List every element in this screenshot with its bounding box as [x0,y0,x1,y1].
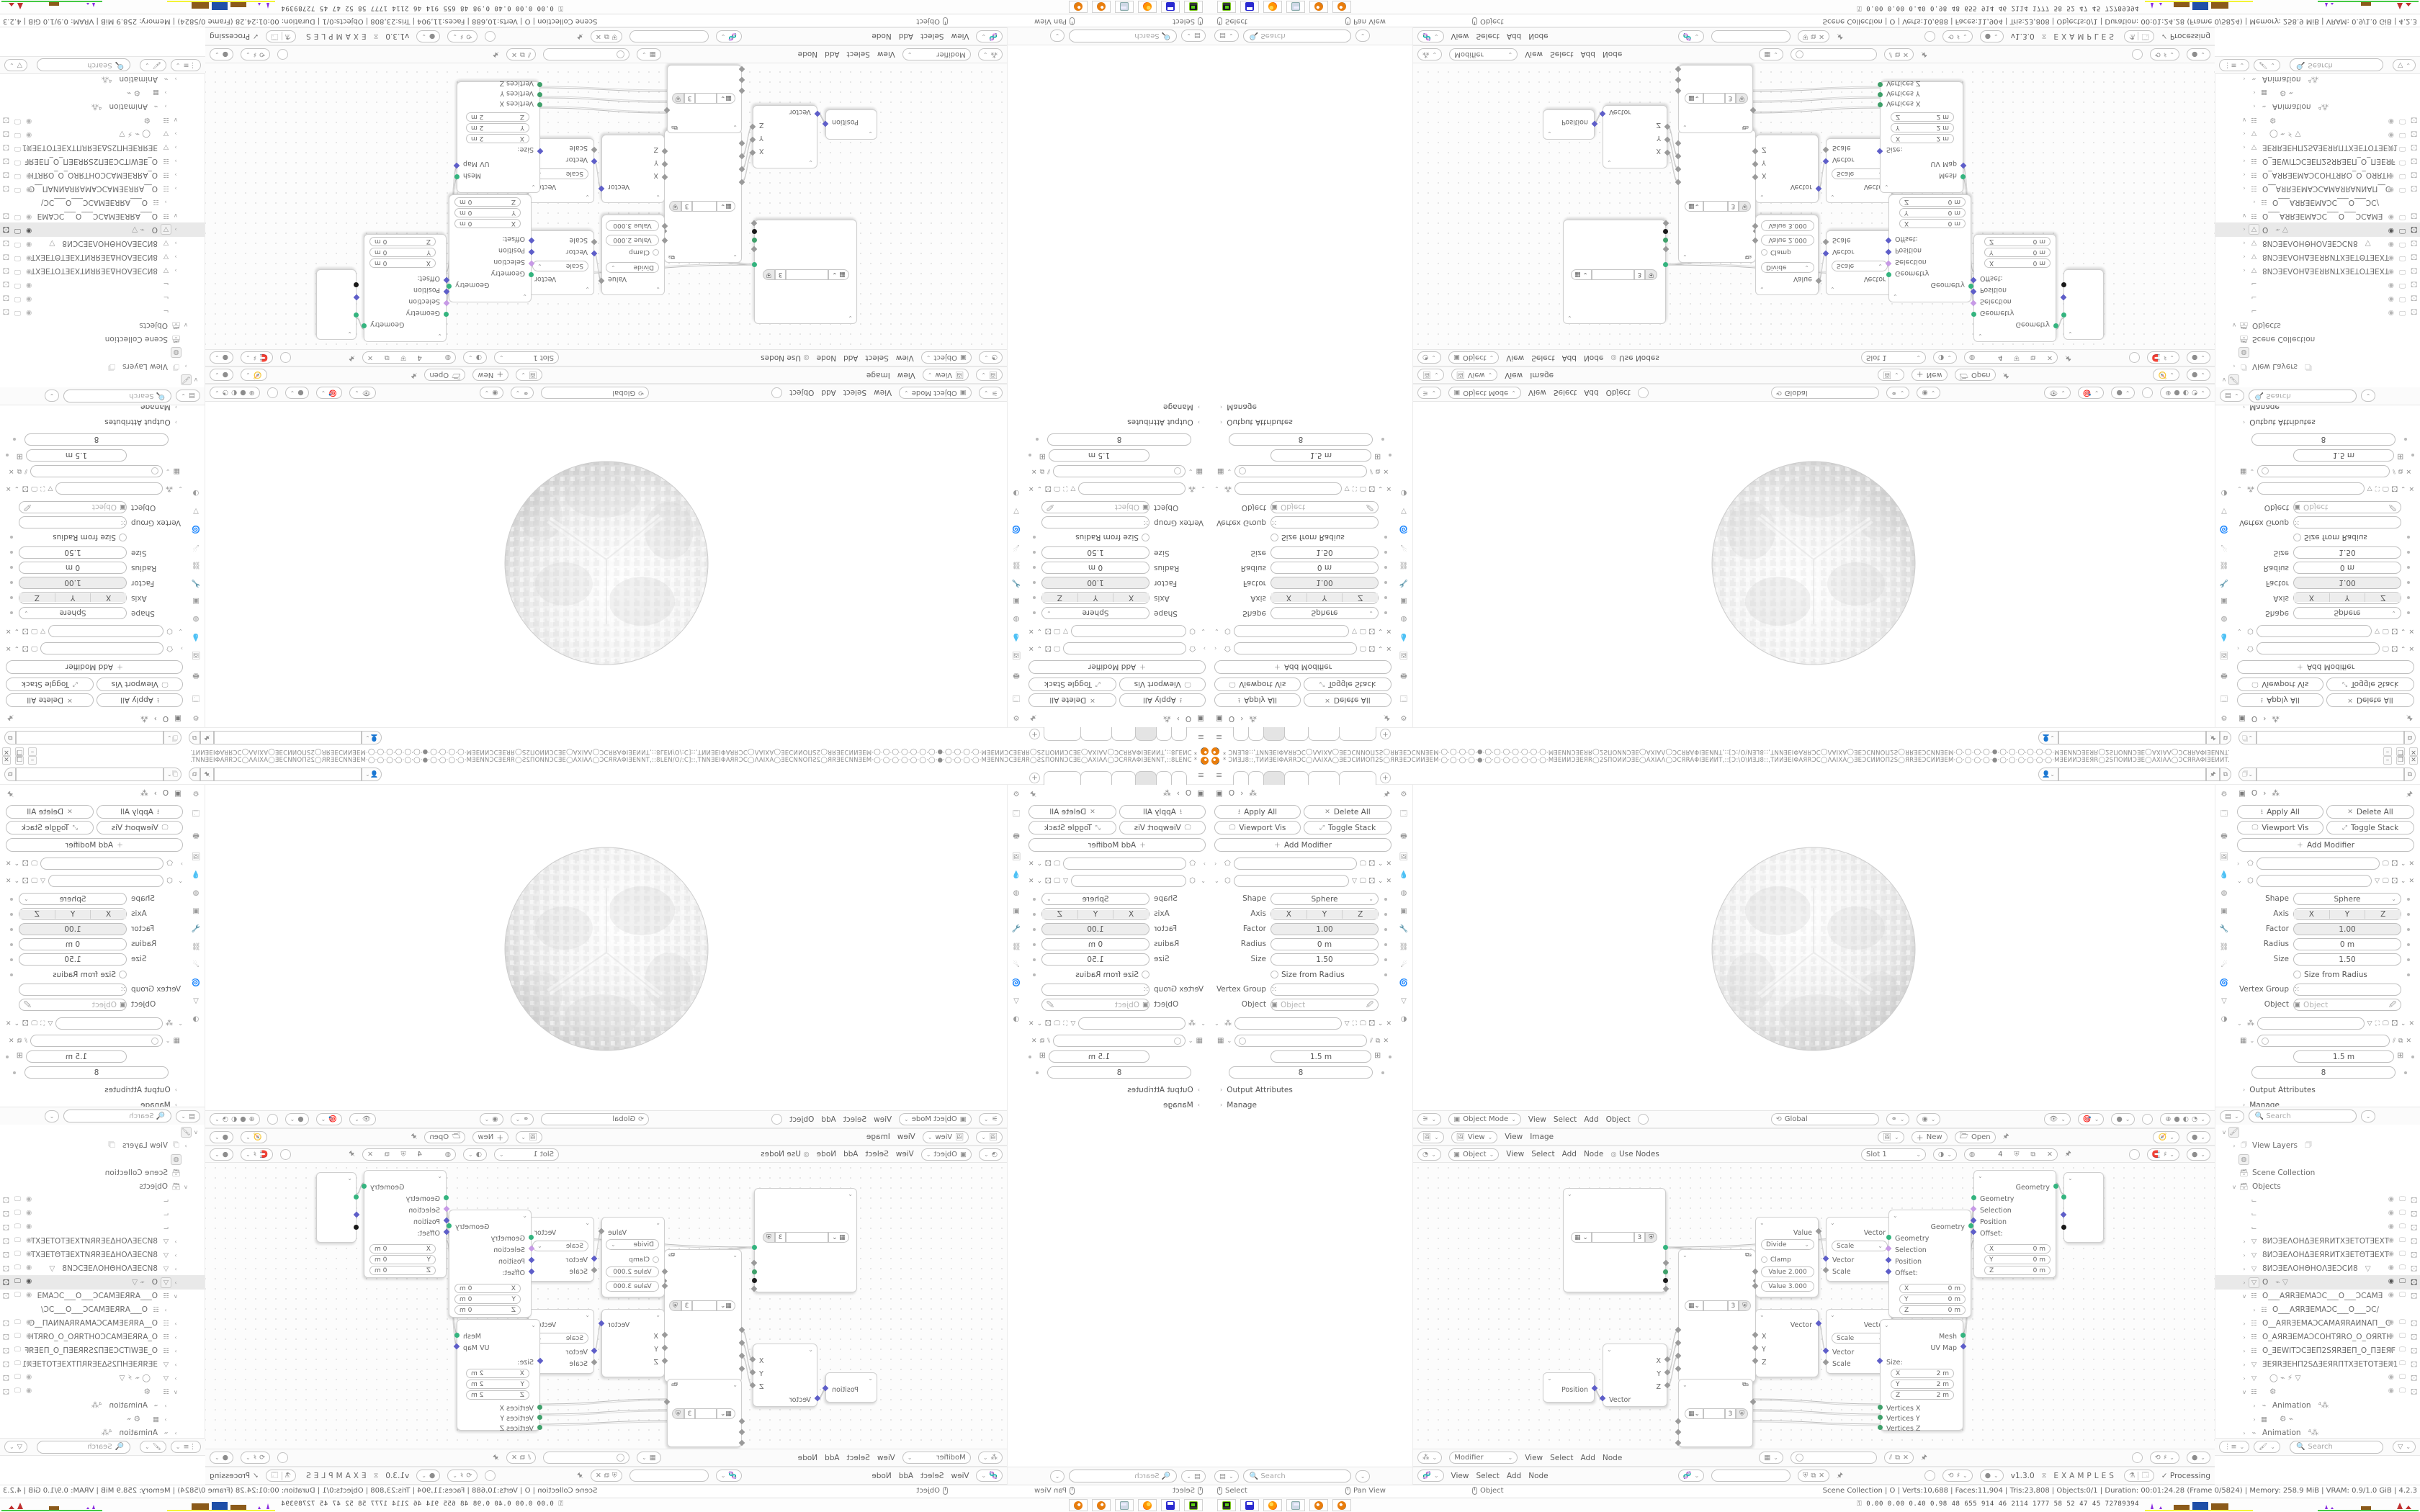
image-view-select[interactable]: 🖼View⌄ [1451,1131,1498,1143]
shading-modes[interactable]: ⊕●◐◔⌄ [2160,1113,2210,1125]
zone-id-icon[interactable]: ▦⌄ [1685,93,1703,104]
factor-field[interactable]: 1.00 [19,577,127,589]
add-workspace-button[interactable]: + [1029,773,1040,783]
toggle-stack-button[interactable]: ⤢Toggle Stack [6,821,94,834]
collapse-chevron-icon[interactable]: ⌄ [437,1173,442,1179]
editor-type-button[interactable]: 🧬⌄ [1417,30,1444,42]
shader-preview-toggle[interactable] [2129,353,2140,364]
properties-options-button[interactable]: ⌄ [1355,1470,1371,1482]
expander-icon[interactable]: › [2250,90,2259,96]
node-socket[interactable] [354,312,359,318]
expander-icon[interactable]: › [171,268,180,274]
outliner-item-label[interactable]: Objects [139,1182,168,1191]
radius-field[interactable]: 0 m [2293,938,2401,950]
node-group-action-icon[interactable]: ⧉ [2398,1038,2403,1045]
properties-tab-icon[interactable]: 💧 [2220,633,2228,641]
zone-count-field[interactable]: 3 [1728,201,1739,212]
node-menu[interactable]: Select [920,1472,944,1480]
node-snap-toggle[interactable]: ⟲♯⌄ [241,48,270,60]
count-field[interactable]: 8 [2251,433,2396,446]
expander-icon[interactable]: v [171,117,180,124]
hide-toggle-icon[interactable]: ◉ [26,168,32,180]
disable-render-icon[interactable]: 🖸 [2411,210,2417,221]
taskbar-app-drive-app[interactable] [1217,1,1236,13]
modifier-header-icon[interactable]: 🖵 [2383,1020,2389,1027]
viewport-menu[interactable]: Object [1606,389,1631,397]
modifier-expanded-row[interactable]: ⌄⬡▽🖵🖸⌄✕ [1028,874,1206,888]
new-image-button[interactable]: ＋ New [472,1131,508,1143]
expander-icon[interactable]: › [171,1279,180,1286]
node-socket[interactable] [1823,158,1829,164]
node-menu[interactable]: View [1525,50,1543,59]
editor-type-button[interactable]: ⚞⌄ [979,387,1003,399]
node-socket[interactable] [354,282,359,287]
disable-viewport-icon[interactable]: 🖵 [14,1346,21,1357]
collapse-chevron-icon[interactable]: ⌄ [868,1375,873,1382]
factor-field[interactable]: 1.00 [1270,577,1379,589]
disable-render-icon[interactable]: 🖸 [2411,1332,2417,1344]
hide-toggle-icon[interactable]: ◉ [26,1209,32,1220]
hide-toggle-icon[interactable]: ◉ [26,114,32,125]
cube-node[interactable]: ⌄MeshUV MapSize:X2 mY2 mZ2 mVertices XVe… [1880,1319,1963,1431]
properties-tab-icon[interactable]: ⚙ [2221,791,2228,798]
animate-dot[interactable] [1036,438,1039,441]
expander-icon[interactable]: v [171,1293,180,1300]
position-node[interactable]: ⌄Position [1543,109,1595,140]
shape-select[interactable]: Sphere⌄ [19,607,127,619]
properties-tab-icon[interactable]: ▽ [193,507,199,515]
properties-search-input[interactable]: 🔍 Search [1243,30,1351,42]
offset-component-field[interactable]: Y0 m [1984,248,2051,257]
restore-button[interactable]: ❐ [15,747,24,756]
outliner-item-label[interactable]: O___AЯRƎEMAƆC___O___ƆCAMƎ [2262,212,2383,220]
taskbar-app-drive-app[interactable] [1217,1499,1236,1511]
node-socket[interactable] [664,107,670,113]
vertex-group-field[interactable]: ⁙ [1270,984,1379,996]
node-socket[interactable] [1663,1260,1669,1266]
snap-toggle[interactable]: ⚭⌄ [511,387,534,399]
modifier-header-icon[interactable]: ▽ [1352,628,1357,635]
zone-field-row[interactable]: ▦⌄3⛨ [1685,1300,1751,1311]
image-id-icon[interactable]: 🖼⌄ [516,1131,542,1143]
active-tool-icon[interactable] [771,387,782,398]
animate-dot[interactable] [1384,973,1387,976]
disable-viewport-icon[interactable]: 🖵 [14,1209,21,1220]
modifier-header-icon[interactable]: ⛶ [1063,485,1067,492]
hide-toggle-icon[interactable]: ◉ [2388,1236,2394,1248]
modifier-header-icon[interactable]: ✕ [6,645,12,652]
animate-dot[interactable] [10,551,13,554]
expander-icon[interactable]: › [2240,76,2249,83]
node-menu[interactable]: Add [825,1454,839,1462]
expander-icon[interactable]: › [171,1362,180,1368]
disable-render-icon[interactable]: 🖸 [3,1277,9,1289]
node-menu[interactable]: Add [1581,1454,1595,1462]
editor-type-button[interactable]: ▤⌄ [1181,30,1206,42]
size-field[interactable]: 1.50 [19,953,127,966]
properties-tab-icon[interactable]: 💧 [2220,871,2228,879]
animate-dot[interactable] [1381,1071,1384,1074]
workspace-tab[interactable] [1156,771,1172,785]
node-socket[interactable] [1823,147,1829,153]
image-menu[interactable]: View [897,371,915,379]
separate-xyz-node[interactable]: ⌄XYZVector [753,105,817,168]
node-tree-type-select[interactable]: Modifier⌄ [1449,1452,1518,1464]
shader-menu[interactable]: View [896,354,914,362]
breadcrumb-item[interactable]: ▣ [174,714,181,723]
outliner-row[interactable]: ›⌁Animation⁴⁂ [0,1398,205,1413]
properties-tab-icon[interactable]: 🗔 [2220,691,2228,703]
hide-toggle-icon[interactable]: ◉ [2388,292,2394,303]
disable-render-icon[interactable]: 🖸 [3,1250,9,1261]
breadcrumb-item[interactable]: ⁂ [1163,714,1171,723]
hide-toggle-icon[interactable]: ◉ [26,1346,32,1357]
properties-tab-icon[interactable]: ▽ [2221,997,2227,1005]
delete-all-button[interactable]: ✕Delete All [1304,805,1391,819]
hide-toggle-icon[interactable]: ◉ [2388,278,2394,289]
outliner-row[interactable]: ›☷O___AЯRƎEMAƆC___O___ƆC∕ [2215,1302,2420,1317]
modifier-header-icon[interactable]: ✕ [2408,860,2414,868]
disable-render-icon[interactable]: 🖸 [2411,1318,2417,1330]
delete-all-button[interactable]: ✕Delete All [6,805,94,819]
viewport-menu[interactable]: View [874,389,892,397]
node-socket[interactable] [752,1245,757,1250]
math-node[interactable]: ⌄ValueDivide⌄ClampValue 2.000Value 3.000 [601,1217,665,1297]
scene-name-field[interactable] [214,768,362,781]
outliner-item-label[interactable]: O_ƎEWITƆCƎEП2SЯRƎEП_O_ПƎEЯF [2262,1346,2396,1355]
properties-tab-icon[interactable]: ⛓ [1399,943,1409,951]
zone-id-icon[interactable]: ▦ ⌄ [828,269,849,280]
node-preview-toggle[interactable] [277,49,288,60]
set-position-node[interactable]: ⌄GeometryGeometrySelectionPositionOffset… [1888,194,1971,302]
shader-preview-toggle[interactable] [280,353,291,364]
animate-dot[interactable] [2407,973,2410,976]
offset-component-field[interactable]: Y0 m [1984,1255,2051,1264]
taskbar-app-calculator[interactable] [1286,1,1305,13]
hide-toggle-icon[interactable]: ◉ [26,210,32,221]
expander-icon[interactable]: v [171,213,180,220]
shader-menu[interactable]: View [896,1150,914,1158]
properties-tab-icon[interactable]: ▣ [1013,907,1019,915]
expander-icon[interactable]: › [2240,227,2249,233]
axis-toggle-option[interactable]: X [1113,594,1149,603]
combine-xyz-node[interactable]: ⌄VectorXYZ [601,1309,665,1377]
zone-shield-icon[interactable]: ⛨ [1736,1408,1748,1419]
nodes-modifier-row[interactable]: ⌄⁂▽⛶🖵🖸⌄✕ [2237,482,2414,495]
outliner-row[interactable]: ›▽O⌁ ▽◉🖵🖸 [2215,1275,2420,1290]
scene-icon[interactable]: 👤⌄ [2038,768,2058,781]
outliner-item-label[interactable]: Scene Collection [105,335,168,343]
animate-dot[interactable] [2404,1071,2407,1074]
collapse-chevron-icon[interactable]: ⌄ [1830,1312,1835,1318]
node-group-action-icon[interactable]: ✕ [9,468,14,475]
pin-icon[interactable]: 🖈 [2406,789,2413,801]
modifier-header-icon[interactable]: ✕ [2408,645,2414,652]
disable-viewport-icon[interactable]: 🖵 [14,1277,21,1289]
node-group-name-field[interactable] [30,465,163,477]
shader-menu[interactable]: View [1506,354,1524,362]
vertex-group-field[interactable]: ⁙ [2293,984,2401,996]
outliner-search-input[interactable]: 🔍 Search [37,59,130,72]
properties-tab-icon[interactable]: 🔧 [2220,925,2228,933]
properties-tab-icon[interactable]: ◍ [2221,889,2228,897]
disable-viewport-icon[interactable]: 🖵 [2399,292,2406,303]
node-socket[interactable] [739,66,745,72]
expander-icon[interactable]: › [2240,1362,2249,1368]
expand-icon[interactable]: › [1198,645,1206,652]
node-socket[interactable] [1675,166,1681,172]
properties-tab-icon[interactable]: ▣ [2220,597,2227,605]
collapse-chevron-icon[interactable]: ⌄ [1567,315,1572,321]
image-gizmos-toggle[interactable]: 🧭⌄ [2153,1131,2179,1143]
proportional-edit-toggle[interactable]: ◉⌄ [480,1113,503,1125]
properties-search-input[interactable]: 🔍 Search [2249,1110,2357,1122]
properties-options-button[interactable]: ⌄ [2361,1110,2376,1122]
toggle-stack-button[interactable]: ⤢Toggle Stack [2326,821,2414,834]
node-group-action-icon[interactable]: ⧉ [17,468,22,475]
animate-dot[interactable] [10,566,13,569]
node-socket[interactable] [1971,312,1976,317]
zone-field-row[interactable]: ▦⌄3⛨ [669,1300,735,1311]
expander-icon[interactable]: v [2240,117,2249,124]
node-socket[interactable] [1675,66,1681,72]
minimize-button[interactable]: – [2383,747,2392,756]
offset-component-field[interactable]: Z0 m [454,1305,521,1315]
disable-render-icon[interactable]: 🖸 [3,1346,9,1357]
pin-icon[interactable]: 🖈 [577,1470,583,1482]
modifier-header-icon[interactable]: ✕ [6,1020,12,1027]
node-snap-toggle[interactable]: ⟲♯⌄ [1942,30,1972,42]
minimize-button[interactable]: – [28,756,37,765]
offset-component-field[interactable]: X0 m [369,258,436,268]
image-menu[interactable]: Image [1530,1133,1554,1141]
properties-tab-icon[interactable]: ⚙ [193,714,200,721]
collapse-chevron-icon[interactable]: ⌄ [1893,293,1898,300]
disable-render-icon[interactable]: 🖸 [3,278,9,289]
node-socket[interactable] [1664,137,1670,143]
use-nodes-checkbox[interactable]: ◎ Use Nodes [1610,1150,1659,1158]
modifier-header-icon[interactable]: ✕ [1028,1020,1034,1027]
minimize-button[interactable]: – [2383,756,2392,765]
shader-overlays-toggle[interactable]: ●⌄ [210,352,233,364]
hide-toggle-icon[interactable]: ◉ [26,1236,32,1248]
outliner-row[interactable]: ›▽8ИƆƎEΛOHΔƎEЯRИTXƎETOTƎEXT◉🖵🖸 [2215,264,2420,278]
zone-count-field[interactable]: 3 [1634,1232,1646,1243]
outliner-row[interactable]: v🗃Objects [0,1179,205,1194]
expander-icon[interactable]: v [2240,213,2249,220]
shader-object-select[interactable]: ▣Object⌄ [921,1148,972,1161]
pin-icon[interactable]: 🖈 [1921,1452,1927,1464]
shader-menu[interactable]: Add [843,1150,858,1158]
zone-count-field[interactable]: 3 [684,93,696,104]
node-overlays-toggle[interactable]: ●⌄ [1980,30,2004,42]
node-socket[interactable] [750,1369,756,1375]
offset-component-field[interactable]: X0 m [454,1284,521,1293]
node-socket[interactable] [1663,229,1668,234]
count-field[interactable]: 8 [2251,1066,2396,1079]
expand-icon[interactable]: › [1214,645,1222,652]
expander-icon[interactable]: › [2240,1430,2249,1436]
node-overlays-toggle[interactable]: ●⌄ [2187,48,2210,60]
size-component-field[interactable]: Y2 m [1891,123,1954,132]
shader-menu[interactable]: Add [1562,1150,1577,1158]
position-node[interactable]: ⌄Position [1543,1372,1595,1403]
modifier-header-icon[interactable]: 🖵 [31,645,37,652]
collapse-chevron-icon[interactable]: ⌄ [732,253,738,260]
taskbar-app-floppy64-app[interactable] [1161,1499,1180,1511]
viewport-menu[interactable]: Object [789,389,814,397]
node-socket[interactable] [1675,88,1681,94]
outliner-item-label[interactable]: 8ИƆƎEΛOHΔƎEЯRИTXƎETOTƎEXT [2262,266,2389,275]
modifier-header-icon[interactable]: ⌄ [14,1020,20,1027]
modifier-header-icon[interactable]: 🖸 [2392,643,2398,654]
node-socket[interactable] [739,77,745,83]
outliner-row[interactable]: ›🗇View Layers🗇 [2215,1138,2420,1153]
modifier-header-icon[interactable]: ⌄ [1037,485,1043,492]
collapse-icon[interactable]: ⌄ [2237,485,2244,492]
shader-overlays-toggle[interactable]: ●⌄ [2187,352,2210,364]
properties-tab-icon[interactable]: 🔧 [1012,925,1021,933]
expand-icon[interactable]: › [1214,860,1222,867]
collapse-chevron-icon[interactable]: ⌄ [1830,194,1835,200]
animate-dot[interactable] [2407,928,2410,931]
outliner-item-label[interactable]: O__AЯRƎEMAƆCAMAЯRAИNAП__C [2262,1319,2390,1328]
transform-orientation-select[interactable]: ⟲Global [541,387,649,399]
outliner-row[interactable]: ›▽8ИƆƎEΛOHΔƎEЯRИTXƎETΘTƎEXT◉🖵🖸 [0,250,205,264]
hide-toggle-icon[interactable]: ◉ [26,1332,32,1344]
offset-component-field[interactable]: X0 m [1984,258,2051,268]
size-field[interactable]: 1.50 [1041,953,1149,966]
zone-node[interactable]: ⌄▦ ⌄3⛨ [1563,220,1666,324]
snap-toggle[interactable]: ⚭⌄ [511,1113,534,1125]
shader-menu[interactable]: Add [843,354,858,362]
attach-icon[interactable]: ⊞ [1039,1050,1046,1060]
outliner-row[interactable]: ›▽8ИƆƎEΛOHΘHOΛƎEƆCИ8▽◉🖵🖸 [2215,236,2420,251]
properties-tab-icon[interactable]: ▣ [192,597,199,605]
expander-icon[interactable]: › [171,1348,180,1354]
zone-name-field[interactable] [693,1300,717,1311]
attach-icon[interactable]: ⊞ [17,452,23,462]
shader-menu[interactable]: Add [1562,354,1577,362]
viewport-menu[interactable]: Select [843,1115,866,1124]
zone-shield-icon[interactable]: ⛨ [1736,93,1748,104]
node-socket[interactable] [599,1228,604,1234]
node-group-name-field[interactable] [543,1452,629,1464]
nodes-modifier-row[interactable]: ⌄⁂▽⛶🖵🖸⌄✕ [1028,482,1206,495]
delete-all-button[interactable]: ✕Delete All [2326,693,2414,707]
zone-shield-icon[interactable]: ⛨ [763,269,775,280]
node-menu[interactable]: View [951,32,969,41]
math-value-field[interactable]: Value 3.000 [606,1281,659,1292]
pin-icon[interactable]: 🖈 [349,1148,355,1160]
modifier-header-icon[interactable]: ✕ [1386,645,1391,652]
animate-dot[interactable] [1033,928,1036,931]
zone-shield-icon[interactable]: ⛨ [763,1232,775,1243]
overlays-toggle[interactable]: ●⌄ [2111,387,2135,399]
size-component-field[interactable]: Z2 m [1891,112,1954,122]
modifier-header-icon[interactable]: 🖵 [2383,860,2389,868]
node-socket[interactable] [751,246,757,252]
collapse-chevron-icon[interactable]: ⌄ [522,293,527,300]
modifier-header-icon[interactable]: ⛶ [40,485,45,492]
animate-dot[interactable] [10,943,13,946]
node-menu[interactable]: Add [899,32,913,41]
taskbar-app-calculator[interactable] [1286,1499,1305,1511]
modifier-name-field[interactable] [1234,858,1357,870]
node-group-id-icon[interactable]: ▦ [2240,467,2246,475]
mode-select[interactable]: ▣Object Mode⌄ [1448,387,1521,399]
expander-icon[interactable]: › [2240,1320,2249,1327]
outliner-item-label[interactable]: O_ƎEWITƆCƎEП2SЯRƎEП_O_ПƎEЯF [2262,157,2396,166]
modifier-header-icon[interactable]: 🖵 [1054,1020,1060,1027]
collapse-chevron-icon[interactable]: ⌄ [655,1220,660,1226]
menu-hamburger-icon[interactable]: ≡ [1194,770,1204,780]
node-socket[interactable] [591,158,597,164]
node-group-actions[interactable]: ⫽⧉✕ [1884,48,1914,60]
outliner-row[interactable]: v☷O___AЯRƎEMAƆC___O___ƆCAMƎ◉🖵🖸 [0,209,205,223]
shader-menu[interactable]: Node [1584,1150,1603,1158]
offset-component-field[interactable]: Z0 m [454,197,521,207]
node-menu[interactable]: Node [871,1472,891,1480]
node-snap-toggle[interactable]: ⟲♯⌄ [1942,1470,1972,1482]
viewport-menu[interactable]: Select [1554,1115,1577,1124]
disable-viewport-icon[interactable]: 🖵 [2399,168,2406,180]
breadcrumb-item[interactable]: ▣ [1197,789,1204,798]
pin-icon[interactable]: 🖈 [493,1452,499,1464]
size-field[interactable]: 1.50 [1270,546,1379,559]
properties-tab-icon[interactable]: 🖼 [1399,651,1409,659]
editor-type-button[interactable]: ▤⌄ [1181,1470,1206,1482]
outliner-row[interactable]: ›▽8ИƆƎEΛOHΘHOΛƎEƆCИ8▽◉🖵🖸 [0,1261,205,1276]
properties-tab-icon[interactable]: 🌀 [192,525,200,533]
node-group-name-field[interactable] [30,1035,163,1047]
viewport-vis-button[interactable]: 🖵Viewport Vis [2237,821,2323,834]
attach-icon[interactable]: ⊞ [2397,452,2403,462]
outliner-row[interactable]: v☷O___AЯRƎEMAƆC___O___ƆCAMƎ◉🖵🖸 [2215,209,2420,223]
zone-field-row[interactable]: ▦⌄3⛨ [1685,93,1748,104]
outliner-row[interactable]: ›▽8ИƆƎEΛOHΘHOΛƎEƆCИ8▽◉🖵🖸 [2215,1261,2420,1276]
vector-math-node[interactable]: ⌄VectorScale⌄VectorScale [1826,1217,1892,1282]
properties-tab-icon[interactable]: ◍ [1401,889,1407,897]
collapse-chevron-icon[interactable]: ⌄ [808,1346,813,1353]
offset-component-field[interactable]: Z0 m [369,237,436,246]
eyedropper-icon[interactable]: 🖉 [1047,502,1054,513]
node-menu[interactable]: Node [1603,1454,1622,1462]
modifier-header-icon[interactable]: 🖸 [1369,858,1375,870]
properties-tab-icon[interactable]: 🗔 [2220,809,2228,821]
modifier-header-icon[interactable]: ✕ [1386,860,1391,868]
modifier-header-icon[interactable]: ⌄ [1378,485,1384,492]
radius-field[interactable]: 0 m [19,938,127,950]
node-socket[interactable] [354,1225,359,1230]
animate-dot[interactable] [1389,1056,1391,1058]
node-socket[interactable] [751,220,757,226]
outliner-row[interactable]: ›▦⚙ ⌁ [2215,86,2420,100]
outliner-row[interactable]: ›▽O⌁ ▽◉🖵🖸 [0,222,205,237]
taskbar-app-floppy64-app[interactable] [1161,1,1180,13]
node-socket[interactable] [1971,1229,1976,1235]
node-socket[interactable] [2061,312,2066,318]
disable-render-icon[interactable]: 🖸 [2411,114,2417,125]
node-socket[interactable] [1971,300,1976,306]
node-socket[interactable] [1663,1245,1668,1250]
modifier-header-icon[interactable]: 🖵 [2383,645,2389,652]
animate-dot[interactable] [1033,943,1036,946]
shape-select[interactable]: Sphere⌄ [1270,893,1379,905]
addon-tools[interactable]: ⚗🗔 [266,1470,296,1482]
node-socket[interactable] [1675,1327,1681,1333]
node-socket[interactable] [1750,1399,1756,1405]
